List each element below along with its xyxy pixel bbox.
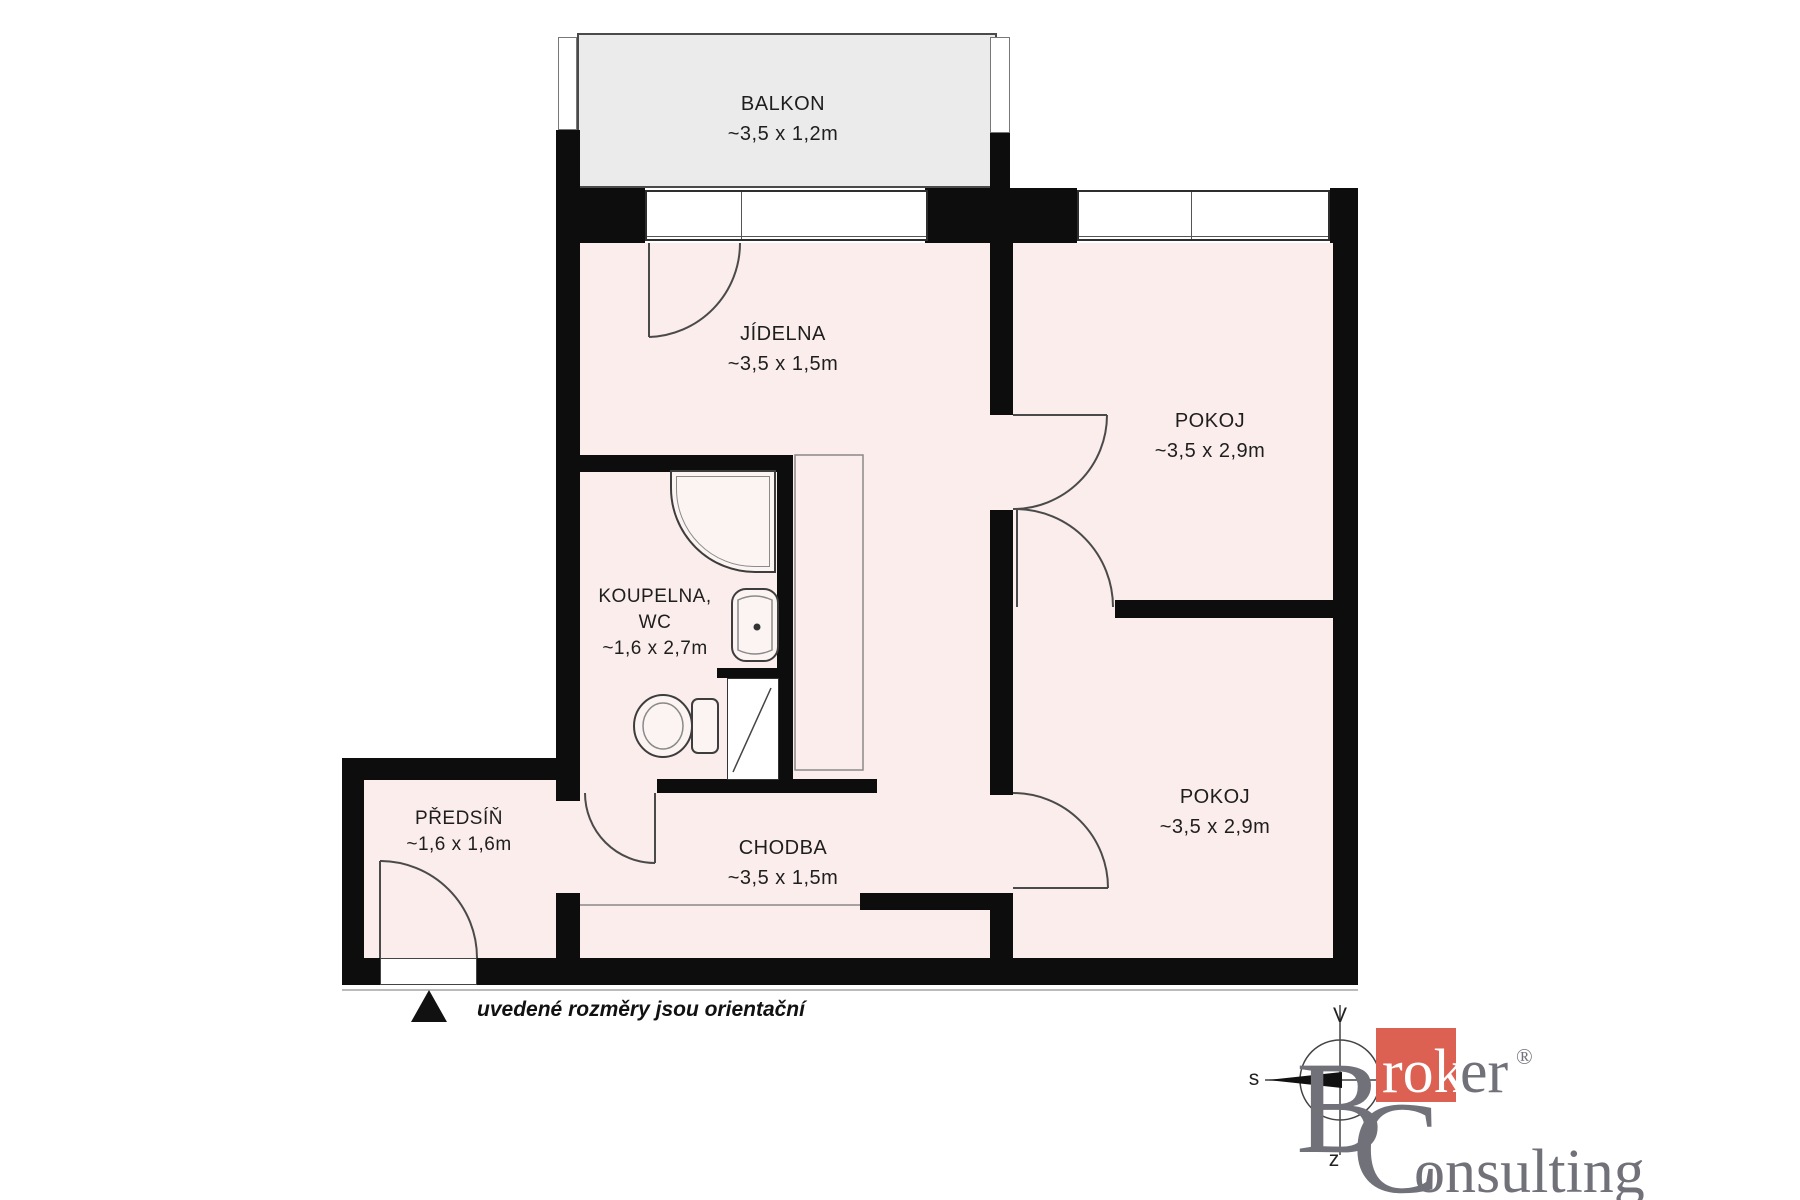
- room-name: POKOJ: [1155, 406, 1266, 436]
- room-dims: ~3,5 x 2,9m: [1160, 812, 1271, 842]
- room2-door: [1013, 793, 1108, 888]
- label-balkon: BALKON ~3,5 x 1,2m: [728, 89, 839, 149]
- room-name: PŘEDSÍŇ: [406, 806, 511, 832]
- logo-registered-mark: ®: [1516, 1046, 1533, 1068]
- plan-linework: [0, 0, 1800, 1200]
- floorplan-canvas: BALKON ~3,5 x 1,2m JÍDELNA ~3,5 x 1,5m P…: [0, 0, 1800, 1200]
- label-predsin: PŘEDSÍŇ ~1,6 x 1,6m: [406, 806, 511, 858]
- room-dims: ~1,6 x 1,6m: [406, 832, 511, 858]
- compass-east-label: V: [1333, 1004, 1347, 1028]
- room-dims: ~3,5 x 1,5m: [728, 349, 839, 379]
- bathroom-door: [585, 793, 655, 863]
- toilet-icon: [634, 695, 718, 757]
- label-pokoj2: POKOJ ~3,5 x 2,9m: [1160, 782, 1271, 842]
- room-name: CHODBA: [728, 833, 839, 863]
- room-dims: ~3,5 x 2,9m: [1155, 436, 1266, 466]
- logo-text-er: er: [1460, 1041, 1508, 1103]
- room-dims: ~1,6 x 2,7m: [598, 636, 711, 662]
- balcony-door: [649, 243, 740, 337]
- room-dims: ~3,5 x 1,2m: [728, 119, 839, 149]
- sink-icon: [732, 589, 778, 661]
- logo-text-rok: rok: [1382, 1041, 1465, 1103]
- disclaimer-note: uvedené rozměry jsou orientační: [477, 998, 805, 1022]
- room-name: KOUPELNA,: [598, 584, 711, 610]
- entrance-marker-icon: [411, 990, 447, 1022]
- compass-north-label: s: [1249, 1067, 1260, 1091]
- logo-text-onsulting: onsulting: [1414, 1141, 1645, 1200]
- label-chodba: CHODBA ~3,5 x 1,5m: [728, 833, 839, 893]
- label-jidelna: JÍDELNA ~3,5 x 1,5m: [728, 319, 839, 379]
- room-dims: ~3,5 x 1,5m: [728, 863, 839, 893]
- shaft-door-line: [733, 688, 771, 772]
- room-name-2: WC: [598, 610, 711, 636]
- rooms-connecting-door: [1017, 509, 1113, 607]
- entrance-door: [380, 861, 477, 958]
- room1-door: [1013, 415, 1107, 509]
- label-koupelna: KOUPELNA, WC ~1,6 x 2,7m: [598, 584, 711, 662]
- room-name: JÍDELNA: [728, 319, 839, 349]
- room-name: BALKON: [728, 89, 839, 119]
- label-pokoj1: POKOJ ~3,5 x 2,9m: [1155, 406, 1266, 466]
- room-name: POKOJ: [1160, 782, 1271, 812]
- wardrobe-outline: [795, 455, 863, 770]
